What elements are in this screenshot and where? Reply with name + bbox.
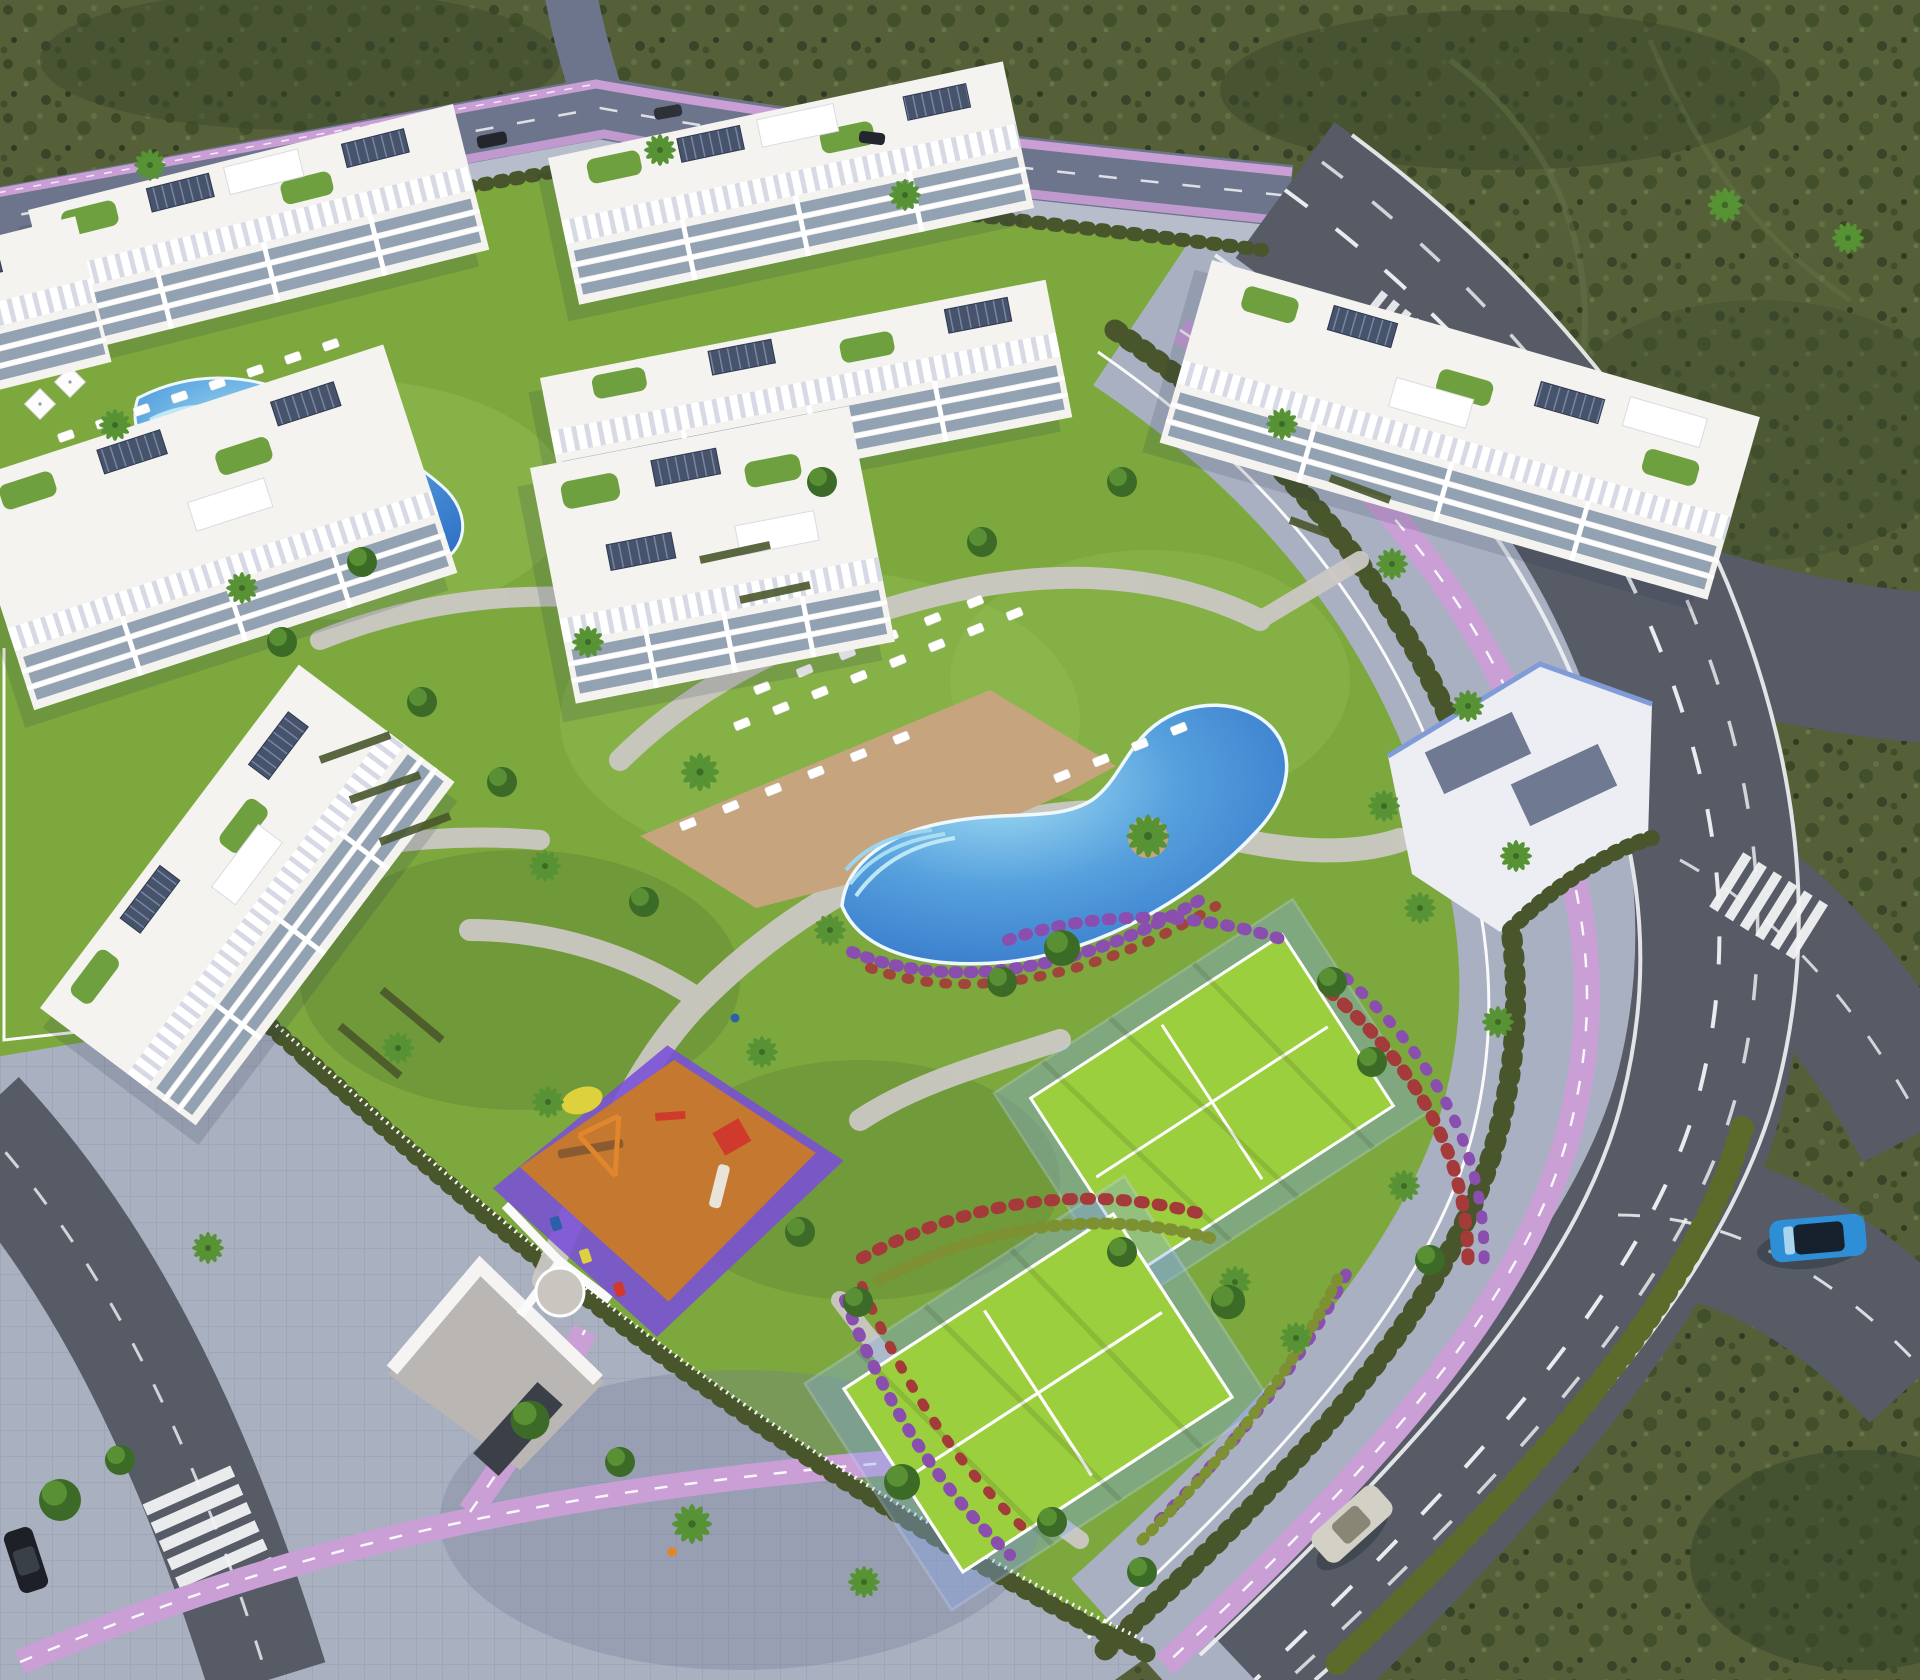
tree — [267, 627, 297, 657]
tree — [1107, 467, 1137, 497]
car-cabin — [1793, 1221, 1845, 1255]
tree — [487, 767, 517, 797]
tree — [407, 687, 437, 717]
tree — [807, 467, 837, 497]
tree — [347, 547, 377, 577]
tree — [511, 1401, 550, 1440]
tree — [1211, 1285, 1246, 1320]
tree — [1107, 1237, 1137, 1267]
tree — [843, 1287, 873, 1317]
tree — [605, 1447, 635, 1477]
tree — [1357, 1047, 1387, 1077]
tree — [1044, 930, 1080, 966]
north-branch-road — [568, 0, 602, 110]
aerial-render — [0, 0, 1920, 1680]
tree — [105, 1445, 135, 1475]
tree — [884, 1464, 920, 1500]
gate-roundel — [536, 1268, 584, 1316]
tree — [1415, 1245, 1445, 1275]
pedestrian — [731, 1014, 740, 1023]
tree — [987, 967, 1017, 997]
scrub-shadow-patch — [1220, 10, 1780, 170]
tree — [629, 887, 659, 917]
tree — [1127, 1557, 1157, 1587]
tree — [785, 1217, 815, 1247]
pedestrian — [667, 1547, 677, 1557]
tree — [1317, 967, 1347, 997]
tree — [39, 1479, 81, 1521]
tree — [1037, 1507, 1067, 1537]
tree — [967, 527, 997, 557]
render-stage — [0, 0, 1920, 1680]
